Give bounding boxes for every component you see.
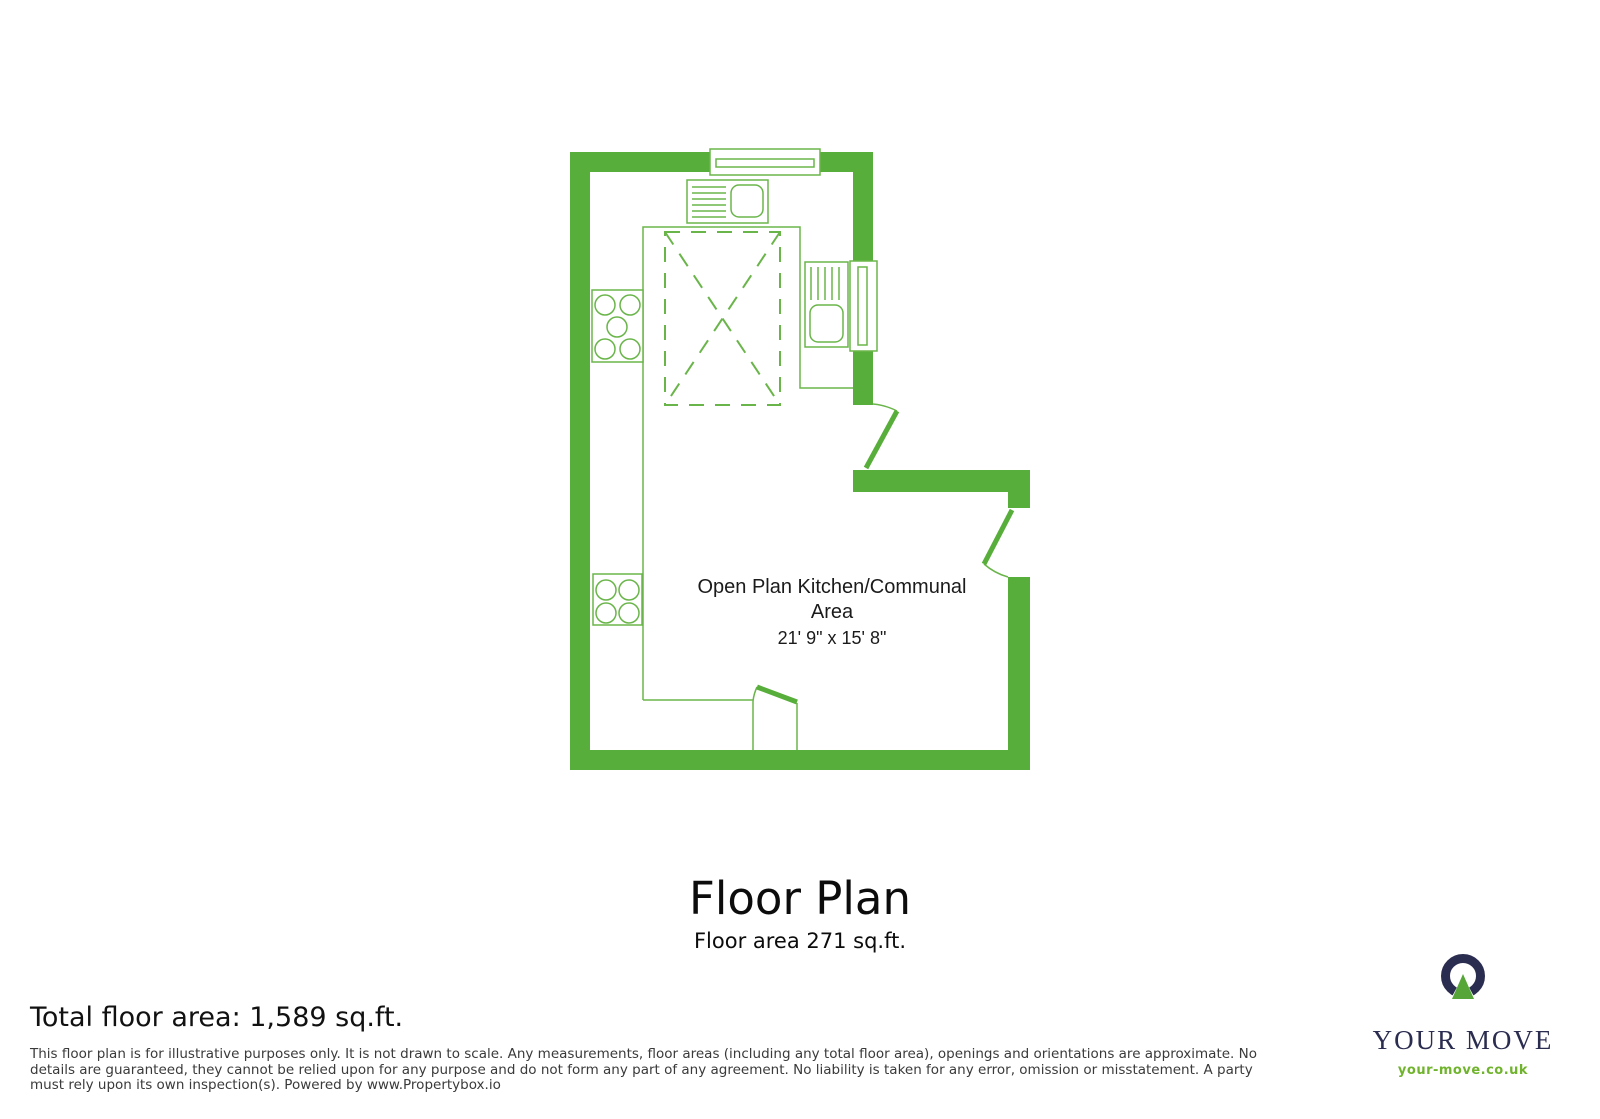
page-title: Floor Plan <box>500 876 1100 921</box>
floor-plan-page: Open Plan Kitchen/Communal Area 21' 9" x… <box>0 0 1600 1119</box>
room-dimensions: 21' 9" x 15' 8" <box>682 627 982 649</box>
wall-segment <box>853 470 1030 492</box>
window-icon <box>850 261 877 351</box>
window-icon <box>710 149 820 175</box>
door-icon <box>984 510 1012 577</box>
logo-url: your-move.co.uk <box>1330 1063 1596 1078</box>
wall-segment <box>570 750 1030 770</box>
room-label: Open Plan Kitchen/Communal Area 21' 9" x… <box>682 575 982 649</box>
total-floor-area: Total floor area: 1,589 sq.ft. <box>30 1002 403 1033</box>
wall-segment <box>1008 470 1030 508</box>
vaulted-area-icon <box>665 232 780 405</box>
wall-segment <box>1008 577 1030 770</box>
sink-unit-icon <box>687 180 768 223</box>
logo-name: YOUR MOVE <box>1330 1025 1596 1056</box>
hob-icon <box>592 290 643 362</box>
your-move-logo: YOUR MOVE your-move.co.uk <box>1330 950 1596 1078</box>
appliance-icon <box>593 574 642 625</box>
room-name: Open Plan Kitchen/Communal Area <box>682 575 982 625</box>
door-icon <box>753 687 797 750</box>
disclaimer-text: This floor plan is for illustrative purp… <box>30 1047 1285 1094</box>
floor-area-subtitle: Floor area 271 sq.ft. <box>500 929 1100 953</box>
door-icon <box>866 404 897 468</box>
wall-segment <box>570 152 590 770</box>
your-move-logo-mark <box>1433 950 1493 1024</box>
sink-unit-icon <box>805 262 848 347</box>
